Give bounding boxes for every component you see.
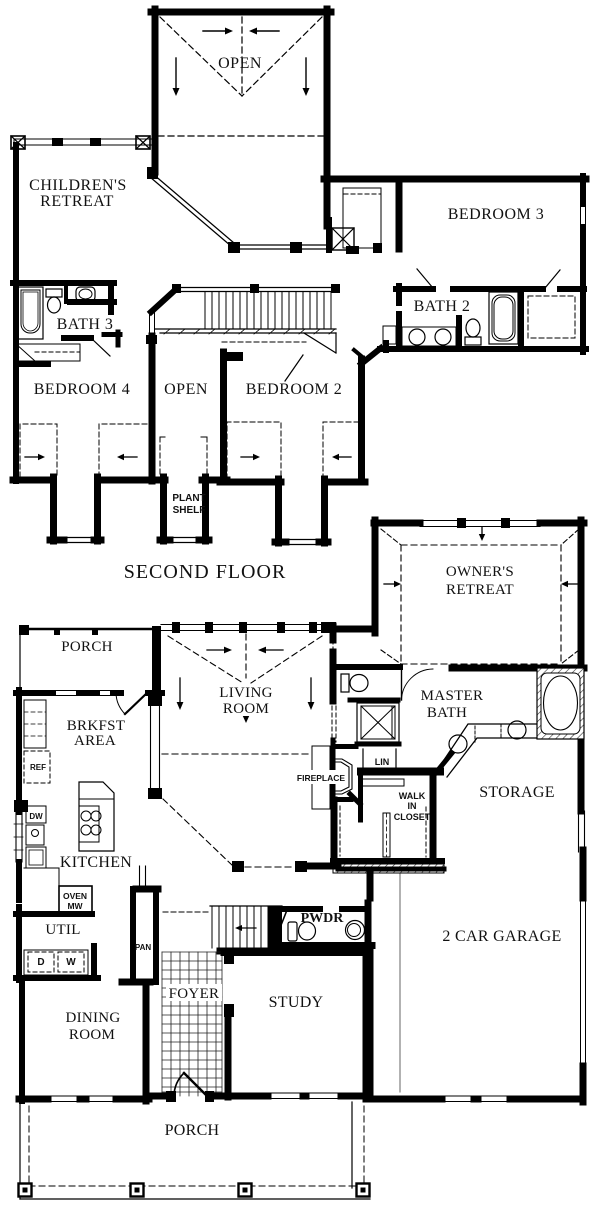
svg-text:PORCH: PORCH: [61, 639, 113, 655]
svg-text:BATH 2: BATH 2: [414, 298, 471, 315]
svg-text:PORCH: PORCH: [165, 1122, 220, 1139]
svg-text:REF: REF: [30, 763, 46, 772]
svg-text:BEDROOM 4: BEDROOM 4: [34, 381, 131, 398]
svg-text:BEDROOM 2: BEDROOM 2: [246, 381, 343, 398]
svg-text:FOYER: FOYER: [169, 986, 220, 1002]
svg-text:BATH: BATH: [427, 705, 467, 721]
svg-text:BRKFST: BRKFST: [67, 718, 126, 734]
svg-text:BATH 3: BATH 3: [57, 316, 114, 333]
svg-text:SHELF: SHELF: [173, 505, 206, 516]
svg-text:CLOSET: CLOSET: [394, 812, 431, 822]
svg-text:MASTER: MASTER: [421, 688, 484, 704]
svg-text:PLANT: PLANT: [172, 493, 205, 504]
svg-text:STUDY: STUDY: [269, 994, 324, 1011]
svg-text:MW: MW: [67, 901, 83, 911]
svg-text:W: W: [66, 957, 76, 968]
svg-text:BEDROOM 3: BEDROOM 3: [448, 206, 545, 223]
svg-text:OVEN: OVEN: [63, 891, 87, 901]
svg-text:OWNER'S: OWNER'S: [446, 564, 514, 580]
svg-text:D: D: [37, 957, 44, 968]
svg-text:RETREAT: RETREAT: [40, 193, 114, 210]
svg-text:DW: DW: [29, 812, 43, 821]
svg-text:RETREAT: RETREAT: [446, 582, 514, 598]
svg-text:OPEN: OPEN: [164, 381, 208, 398]
svg-text:PAN: PAN: [135, 943, 152, 952]
svg-text:AREA: AREA: [74, 733, 116, 749]
svg-text:ROOM: ROOM: [69, 1027, 115, 1043]
svg-text:FIREPLACE: FIREPLACE: [297, 773, 346, 783]
svg-text:DINING: DINING: [65, 1010, 120, 1026]
svg-text:UTIL: UTIL: [45, 922, 80, 938]
svg-text:WALK: WALK: [399, 791, 426, 801]
svg-text:ROOM: ROOM: [223, 701, 269, 717]
svg-text:LIVING: LIVING: [219, 685, 272, 701]
svg-text:STORAGE: STORAGE: [479, 784, 555, 801]
svg-text:CHILDREN'S: CHILDREN'S: [29, 177, 127, 194]
svg-text:IN: IN: [408, 801, 417, 811]
svg-text:2 CAR GARAGE: 2 CAR GARAGE: [442, 928, 561, 945]
svg-text:OPEN: OPEN: [218, 55, 262, 72]
svg-text:KITCHEN: KITCHEN: [60, 854, 132, 871]
svg-text:LIN: LIN: [375, 757, 390, 767]
svg-text:PWDR: PWDR: [301, 911, 345, 926]
svg-text:SECOND FLOOR: SECOND FLOOR: [124, 561, 287, 583]
